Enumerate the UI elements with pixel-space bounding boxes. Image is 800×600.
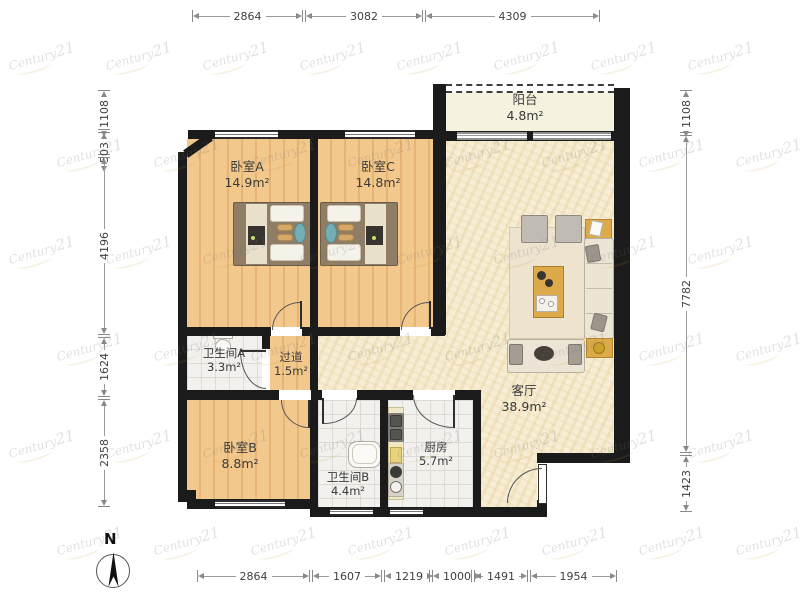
- door-leaf-bedroom-a: [300, 301, 302, 329]
- dim-bottom-0: 2864: [197, 570, 310, 582]
- wall-bedroom-a-c: [310, 139, 318, 335]
- dim-right-0: 1108: [680, 90, 692, 133]
- dim-left-3: 1624: [98, 337, 110, 397]
- century21-watermark: Century21: [636, 134, 708, 176]
- century21-watermark: Century21: [6, 425, 78, 467]
- dim-left-0: 1108: [98, 90, 110, 130]
- side-table-lamp: [593, 342, 605, 354]
- bed-c-bolster: [338, 234, 354, 241]
- dim-bottom-3: 1000: [432, 570, 472, 582]
- tray-cup: [548, 301, 554, 307]
- century21-watermark: Century21: [394, 37, 466, 79]
- dim-bottom-4: 1491: [474, 570, 528, 582]
- bed-c-bolster: [338, 224, 354, 231]
- window-kitchen: [390, 508, 423, 516]
- bed-a-cushion: [294, 223, 306, 243]
- armchair: [555, 215, 582, 243]
- stove-pot: [390, 481, 402, 493]
- room-name: 卧室C: [328, 159, 428, 175]
- century21-watermark: Century21: [733, 522, 800, 564]
- room-area: 4.4m²: [308, 484, 388, 498]
- bed-c-cushion: [325, 223, 337, 243]
- bed-a-pillow: [270, 244, 304, 261]
- window-bedroom-b: [215, 500, 285, 508]
- century21-watermark: Century21: [588, 37, 660, 79]
- room-label-kitchen: 厨房 5.7m²: [396, 440, 476, 469]
- dim-right-2: 1423: [680, 455, 692, 512]
- bed-a-tv: [248, 226, 265, 245]
- room-area: 14.9m²: [197, 175, 297, 191]
- dim-bottom-2: 1219: [384, 570, 430, 582]
- room-area: 4.8m²: [465, 108, 585, 124]
- century21-watermark: Century21: [6, 231, 78, 273]
- century21-watermark: Century21: [636, 328, 708, 370]
- room-area: 3.3m²: [184, 360, 264, 374]
- wall-bedroom-b-bathroom-b: [310, 400, 318, 517]
- window-bedroom-c: [345, 130, 415, 139]
- century21-watermark: Century21: [733, 134, 800, 176]
- dim-right-1: 7782: [680, 135, 692, 453]
- armchair: [521, 215, 548, 243]
- century21-watermark: Century21: [103, 231, 175, 273]
- bed-a-bolster: [277, 224, 293, 231]
- century21-watermark: Century21: [345, 522, 417, 564]
- sink-basin: [390, 415, 402, 427]
- room-area: 8.8m²: [200, 456, 280, 472]
- bed-a-pillow: [270, 205, 304, 222]
- dim-bottom-5: 1954: [530, 570, 617, 582]
- bed-a-bolster: [277, 234, 293, 241]
- century21-watermark: Century21: [248, 522, 320, 564]
- room-label-bedroom-b: 卧室B 8.8m²: [200, 440, 280, 471]
- bed-c-tv-light: [372, 236, 376, 240]
- century21-watermark: Century21: [151, 522, 223, 564]
- door-gap-bedroom-b: [279, 390, 311, 400]
- century21-watermark: Century21: [685, 37, 757, 79]
- century21-watermark: Century21: [491, 37, 563, 79]
- sink-basin: [390, 429, 402, 440]
- door-leaf-bedroom-c: [429, 301, 431, 329]
- window-bedroom-a: [215, 130, 278, 139]
- century21-watermark: Century21: [685, 425, 757, 467]
- loveseat-throw: [534, 346, 554, 361]
- room-area: 5.7m²: [396, 454, 476, 468]
- room-label-living-room: 客厅 38.9m²: [474, 383, 574, 414]
- room-name: 卫生间A: [184, 346, 264, 360]
- room-name: 卫生间B: [308, 470, 388, 484]
- bed-c-pillow: [327, 244, 361, 261]
- century21-watermark: Century21: [442, 522, 514, 564]
- bed-a-tv-light: [251, 236, 255, 240]
- dim-top-2: 4309: [425, 10, 600, 22]
- century21-watermark: Century21: [6, 37, 78, 79]
- century21-watermark: Century21: [103, 37, 175, 79]
- room-label-bedroom-a: 卧室A 14.9m²: [197, 159, 297, 190]
- loveseat-pillow: [509, 344, 523, 365]
- balcony-dashed-edge: [446, 84, 614, 86]
- dim-top-1: 3082: [305, 10, 423, 22]
- room-name: 客厅: [474, 383, 574, 399]
- coffee-table-decor: [537, 271, 546, 280]
- room-name: 卧室A: [197, 159, 297, 175]
- century21-watermark: Century21: [103, 425, 175, 467]
- floor-plan: 阳台 4.8m² 卧室A 14.9m² 卧室C 14.8m² 客厅 38.9m²…: [0, 0, 800, 600]
- room-label-bathroom-b: 卫生间B 4.4m²: [308, 470, 388, 499]
- window-bathroom-b: [330, 508, 373, 516]
- dim-top-0: 2864: [192, 10, 303, 22]
- bathtub-inner: [352, 444, 377, 464]
- compass-north-label: N: [104, 530, 117, 548]
- dim-bottom-1: 1607: [312, 570, 382, 582]
- room-label-hallway: 过道 1.5m²: [261, 350, 321, 379]
- coffee-table-decor: [545, 279, 553, 287]
- bed-c-pillow: [327, 205, 361, 222]
- dim-left-2: 4196: [98, 157, 110, 335]
- century21-watermark: Century21: [200, 37, 272, 79]
- century21-watermark: Century21: [636, 522, 708, 564]
- sofa-cushion-line: [586, 263, 612, 264]
- dim-left-1: 503: [98, 132, 110, 155]
- room-label-bedroom-c: 卧室C 14.8m²: [328, 159, 428, 190]
- century21-watermark: Century21: [297, 37, 369, 79]
- room-name: 厨房: [396, 440, 476, 454]
- century21-watermark: Century21: [54, 328, 126, 370]
- room-area: 38.9m²: [474, 399, 574, 415]
- room-label-bathroom-a: 卫生间A 3.3m²: [184, 346, 264, 375]
- wall-left: [178, 152, 187, 495]
- sofa-pillow: [585, 244, 602, 263]
- century21-watermark: Century21: [733, 328, 800, 370]
- loveseat-pillow: [568, 344, 582, 365]
- room-area: 1.5m²: [261, 364, 321, 378]
- dim-left-4: 2358: [98, 399, 110, 507]
- wall-bedroom-c-living: [433, 84, 446, 335]
- room-name: 过道: [261, 350, 321, 364]
- room-label-balcony: 阳台 4.8m²: [465, 92, 585, 123]
- century21-watermark: Century21: [54, 134, 126, 176]
- balcony-sliding-window: [533, 132, 611, 140]
- wall-right: [614, 88, 630, 463]
- century21-watermark: Century21: [685, 231, 757, 273]
- room-name: 卧室B: [200, 440, 280, 456]
- room-name: 阳台: [465, 92, 585, 108]
- century21-watermark: Century21: [539, 522, 611, 564]
- sofa-cushion-line: [586, 288, 612, 289]
- tray-cup: [539, 298, 545, 304]
- room-area: 14.8m²: [328, 175, 428, 191]
- balcony-sliding-window: [457, 132, 527, 140]
- dining-area-floor: [318, 335, 446, 390]
